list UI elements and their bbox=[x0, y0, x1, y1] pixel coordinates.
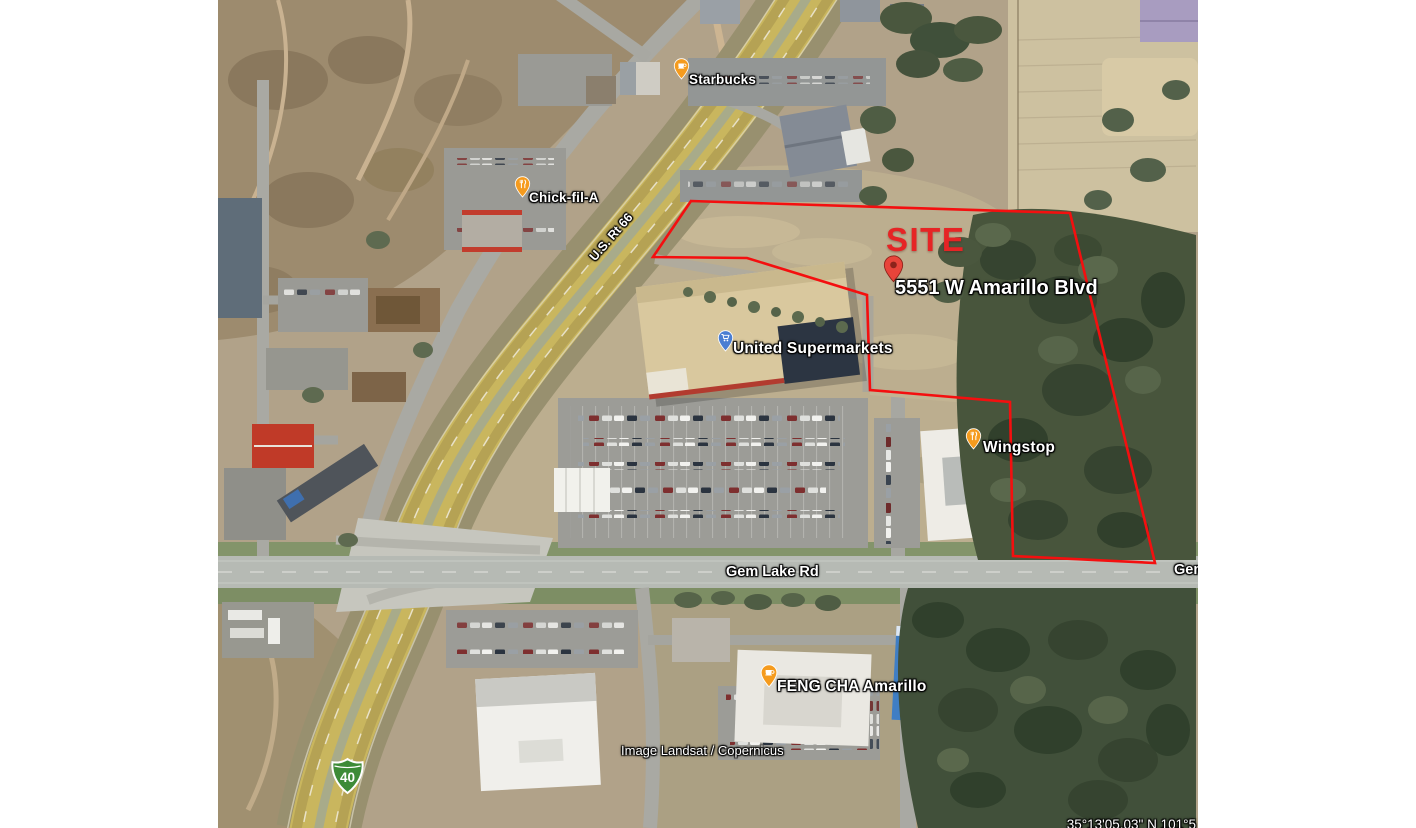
building bbox=[586, 76, 616, 104]
coordinates-readout: 35°13'05.03" N 101°5 bbox=[1067, 817, 1196, 828]
building bbox=[352, 372, 406, 402]
starbucks-building bbox=[620, 62, 660, 95]
feng-cha-label[interactable]: FENG CHA Amarillo bbox=[777, 678, 927, 696]
feng-cha-pin[interactable] bbox=[760, 664, 778, 688]
satellite-map[interactable]: Starbucks Chick-fil-A SITE 5551 W Amaril… bbox=[218, 0, 1198, 828]
tree-canopy-south bbox=[898, 588, 1196, 828]
tree-canopy-east bbox=[932, 209, 1196, 560]
carwash-building bbox=[554, 468, 610, 512]
gem-lake-rd-label: Gem Lake Rd bbox=[726, 564, 819, 580]
gem-lake-rd-label-right: Gem Lake Rd bbox=[1174, 562, 1198, 578]
interstate-40-shield: 40 bbox=[330, 757, 365, 795]
chick-fil-a-building bbox=[462, 210, 522, 252]
building bbox=[218, 198, 262, 318]
building bbox=[700, 0, 740, 24]
gem-lake-road bbox=[218, 556, 1198, 588]
aerial-imagery bbox=[218, 0, 1198, 828]
united-supermarkets-label[interactable]: United Supermarkets bbox=[733, 340, 893, 358]
wingstop-pin[interactable] bbox=[965, 428, 982, 450]
wingstop-label[interactable]: Wingstop bbox=[983, 439, 1055, 457]
feng-cha-building bbox=[734, 650, 871, 747]
united-supermarkets-pin[interactable] bbox=[717, 330, 734, 352]
site-address-label: 5551 W Amarillo Blvd bbox=[895, 277, 1098, 300]
building bbox=[672, 618, 730, 662]
interstate-shield-number: 40 bbox=[340, 770, 355, 785]
site-title: SITE bbox=[886, 221, 965, 259]
building bbox=[840, 0, 880, 22]
chick-fil-a-label[interactable]: Chick-fil-A bbox=[529, 190, 599, 205]
imagery-attribution: Image Landsat / Copernicus bbox=[621, 743, 784, 758]
starbucks-label[interactable]: Starbucks bbox=[689, 72, 756, 87]
starbucks-pin[interactable] bbox=[673, 58, 690, 80]
building bbox=[475, 673, 601, 791]
